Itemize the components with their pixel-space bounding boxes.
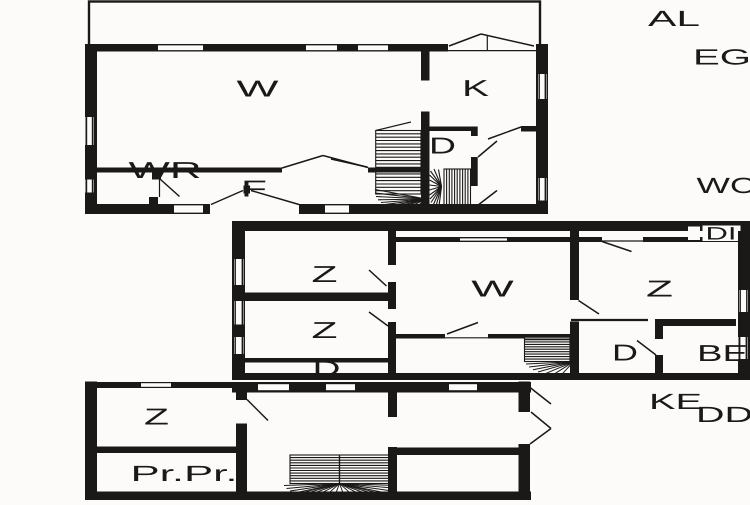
- svg-text:Pr.Pr.: Pr.Pr.: [131, 461, 238, 486]
- svg-text:Z: Z: [312, 317, 338, 343]
- svg-text:KE: KE: [649, 389, 702, 414]
- svg-text:D: D: [313, 358, 341, 381]
- svg-text:F: F: [241, 176, 267, 202]
- svg-text:K: K: [462, 75, 490, 101]
- svg-text:DD: DD: [696, 402, 750, 427]
- svg-text:Z: Z: [312, 261, 338, 287]
- svg-text:Z: Z: [144, 404, 169, 430]
- svg-text:DI: DI: [706, 224, 737, 244]
- svg-text:AL: AL: [648, 6, 700, 31]
- svg-text:D: D: [429, 133, 456, 159]
- svg-text:WC: WC: [697, 173, 750, 198]
- svg-text:W: W: [471, 276, 514, 302]
- svg-text:EG: EG: [693, 45, 750, 70]
- svg-text:D: D: [612, 340, 638, 366]
- svg-text:BE: BE: [697, 340, 748, 366]
- svg-text:Z: Z: [646, 276, 673, 302]
- svg-text:W: W: [237, 76, 280, 102]
- svg-text:WR: WR: [129, 157, 202, 183]
